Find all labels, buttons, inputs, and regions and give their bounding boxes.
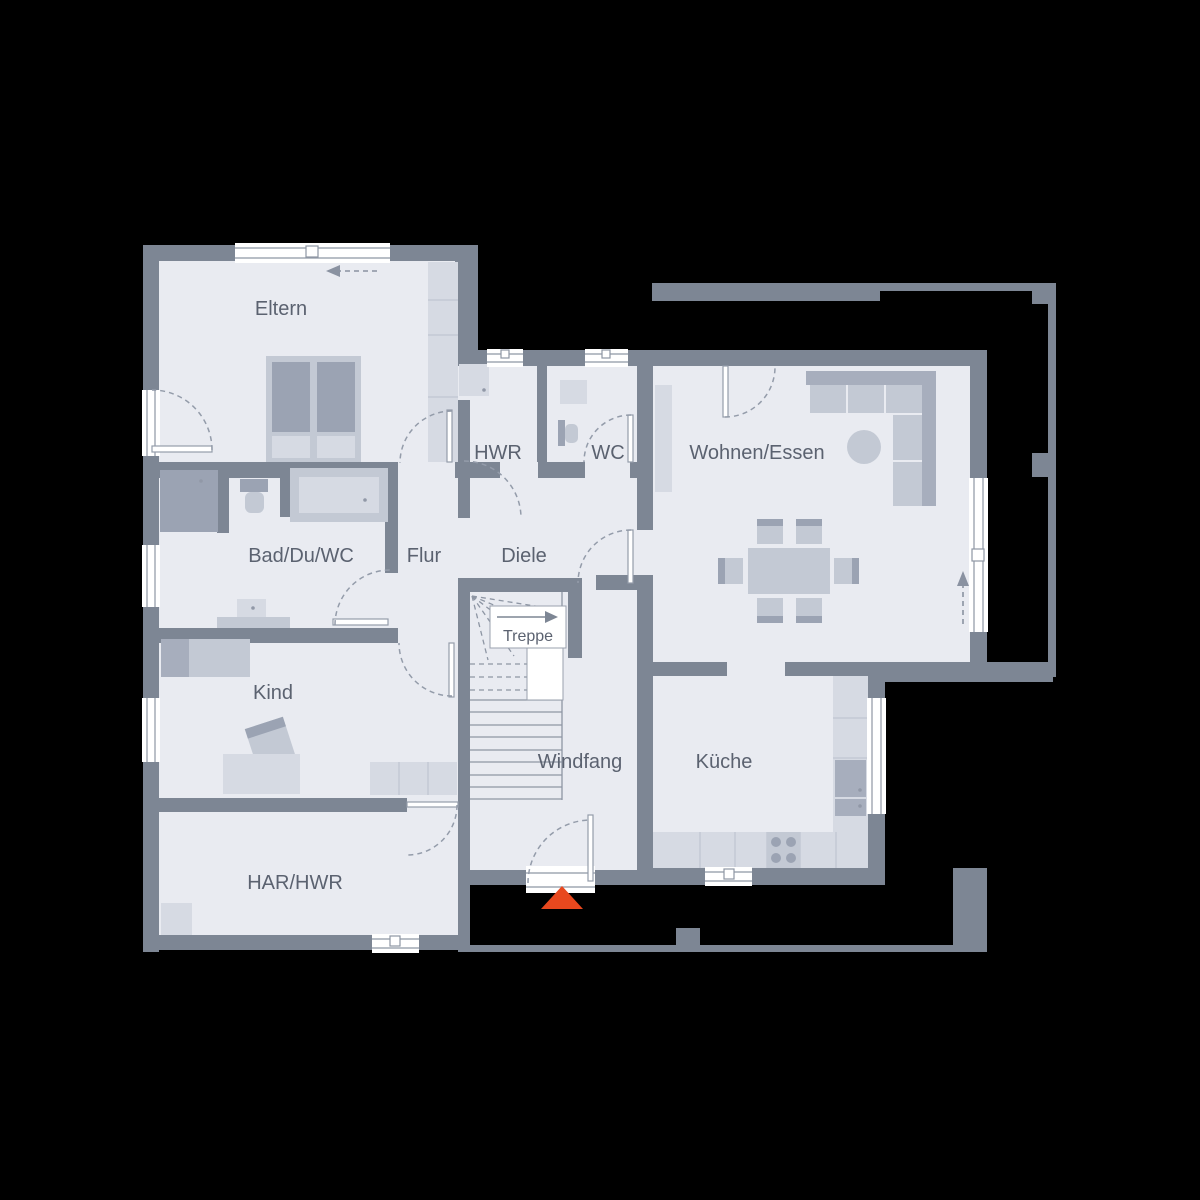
door-leaf-eltern-flur [447,410,452,462]
wall-har-bottom [143,935,470,950]
kind-bed [189,639,250,677]
window-handle [501,350,509,358]
floor-plan-drawing: Eltern HWR WC Wohnen/Essen Bad/Du/WC Flu… [0,0,1200,1200]
bathtub-inner [299,477,379,513]
window-kind-left [142,698,160,762]
sink-drain [251,606,255,610]
patio-post [676,928,700,948]
sofa-cushion [848,385,884,413]
kitchen-oven [835,760,866,797]
room-label-hwr: HWR [474,442,522,464]
shower [160,470,218,532]
floor-plan-canvas: Eltern HWR WC Wohnen/Essen Bad/Du/WC Flu… [0,0,1200,1200]
wall-flur-diele-stub [458,478,470,518]
bed-mattress [317,362,355,432]
door-leaf-kind [449,643,454,697]
coffee-table [847,430,881,464]
door-leaf-bad [333,619,388,625]
toilet-bowl [245,492,264,513]
window-handle [724,869,734,879]
door-leaf-eltern [152,446,212,452]
kind-dresser [223,754,300,794]
stove [767,832,800,868]
terrace-edge-right [1048,291,1056,677]
washer-knob [482,388,486,392]
furniture-hwr [459,364,489,396]
sofa-cushion [886,385,922,413]
kind-bed-pillow [161,639,189,677]
bed-foot [317,436,355,458]
room-label-windfang: Windfang [538,751,623,773]
dining-table [748,548,830,594]
chair-back [852,558,859,584]
room-label-har-hwr: HAR/HWR [247,872,343,894]
furniture-har [161,903,192,935]
bathtub-drain [363,498,367,502]
toilet-tank [240,479,268,492]
chair-back [796,519,822,526]
wall-band-right [630,462,653,478]
chair-back [718,558,725,584]
wall-har-top [143,798,407,812]
kitchen-drawer [835,799,866,816]
burner [786,853,796,863]
bed-mattress [272,362,310,432]
wall-diele-bottom-right [596,575,653,590]
wc-toilet-bowl [565,424,578,443]
wall-center-column-lower [637,585,653,885]
window-kueche-right [867,698,886,814]
shower-drain [199,479,203,483]
room-label-kind: Kind [253,682,293,704]
window-bad-left [142,545,160,607]
wall-eltern-right [455,245,478,366]
wall-kueche-bottom [637,868,885,885]
window-handle [306,246,318,257]
wall-top-main [455,350,987,366]
room-label-flur: Flur [407,545,442,567]
room-label-diele: Diele [501,545,547,567]
bed-foot [272,436,310,458]
wall-diele-bottom [458,578,580,592]
room-label-treppe: Treppe [503,628,553,645]
kind-shelf [370,762,457,795]
chair-back [757,519,783,526]
door-leaf-wc [628,415,633,462]
wc-toilet-tank [558,420,565,446]
wall-kueche-top-right [785,662,885,676]
burner [786,837,796,847]
oven-knob [858,788,862,792]
sofa-cushion [810,385,846,413]
door-leaf-wohnen-terrace [723,366,728,417]
wall-toilet-partition [280,462,291,517]
sofa-backrest-top [806,371,936,385]
wall-hwr-jamb [458,400,470,462]
wall-center-column-upper [637,350,653,530]
terrace-mid-post [1032,453,1056,477]
wall-wohnen-bottom-ext [885,662,1053,682]
wall-band-hwr [455,462,500,478]
wall-shower-partition [217,462,229,533]
chair-back [757,616,783,623]
burner [771,837,781,847]
sofa-cushion [893,415,922,460]
room-label-kueche: Küche [696,751,753,773]
room-label-wc: WC [591,442,624,464]
wc-sink [560,380,587,404]
sofa-cushion [893,462,922,506]
door-leaf-entrance [588,815,593,881]
patio-edge-bottom [470,945,953,952]
vanity [217,617,290,628]
sideboard [655,385,672,492]
terrace-edge-top-left [652,283,880,301]
terrace-edge-top-right [880,283,1056,291]
window-handle [390,936,400,946]
chair-back [796,616,822,623]
window-handle [972,549,984,561]
room-label-wohnen-essen: Wohnen/Essen [689,442,824,464]
wardrobe [428,262,458,462]
door-leaf-har [407,802,458,807]
wall-hwr-wc-divider [537,351,547,462]
wall-stairs-left [458,578,470,952]
room-label-bad-du-wc: Bad/Du/WC [248,545,354,567]
drawer-knob [858,804,862,808]
wall-band-mid [538,462,585,478]
stair-landing-box [527,648,563,700]
door-leaf-diele-wohnen [628,530,633,583]
window-handle [602,350,610,358]
room-label-eltern: Eltern [255,298,307,320]
patio-block [953,868,987,952]
har-cabinet [161,903,192,935]
burner [771,853,781,863]
sofa-backrest-right [922,385,936,506]
wall-stairs-right [568,578,582,658]
